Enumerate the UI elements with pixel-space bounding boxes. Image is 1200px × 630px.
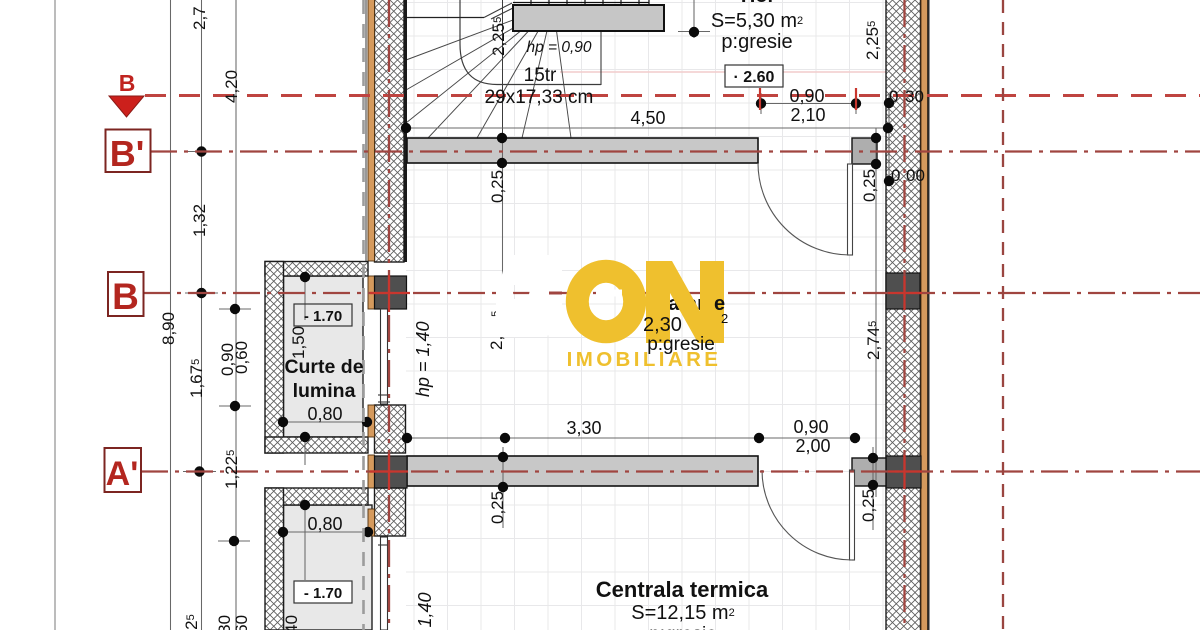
svg-text:0,25: 0,25 xyxy=(488,170,507,203)
svg-text:2,00: 2,00 xyxy=(795,436,830,456)
svg-text:0,60: 0,60 xyxy=(232,341,251,374)
svg-text:1,40: 1,40 xyxy=(282,615,301,630)
svg-text:- 1.70: - 1.70 xyxy=(304,585,342,602)
svg-text:hp = 1,40: hp = 1,40 xyxy=(415,592,435,630)
svg-text:2,10: 2,10 xyxy=(790,105,825,125)
svg-text:29x17,33 cm: 29x17,33 cm xyxy=(485,87,594,108)
svg-text:- 1.70: - 1.70 xyxy=(304,308,342,325)
svg-text:0,80: 0,80 xyxy=(307,514,342,534)
svg-text:p:gresie: p:gresie xyxy=(647,334,715,355)
svg-text:0,25: 0,25 xyxy=(860,169,879,202)
svg-text:0,25: 0,25 xyxy=(488,491,507,524)
svg-text:3,30: 3,30 xyxy=(566,418,601,438)
svg-text:30: 30 xyxy=(905,87,924,106)
svg-text:0: 0 xyxy=(889,87,898,106)
svg-text:1,50: 1,50 xyxy=(289,326,308,359)
svg-text:2,7: 2,7 xyxy=(190,6,209,30)
svg-text:hp = 1,40: hp = 1,40 xyxy=(413,321,433,397)
svg-text:0,80: 0,80 xyxy=(307,404,342,424)
svg-text:Curte de: Curte de xyxy=(284,356,363,378)
svg-text:0,90: 0,90 xyxy=(793,417,828,437)
svg-text:B: B xyxy=(119,70,136,96)
svg-text:S=12,15 m2: S=12,15 m2 xyxy=(631,602,734,624)
svg-text:· 2.60: · 2.60 xyxy=(734,69,775,86)
svg-text:B': B' xyxy=(110,133,145,174)
svg-text:2,30: 2,30 xyxy=(643,314,682,336)
svg-text:A': A' xyxy=(106,455,139,493)
svg-text:00: 00 xyxy=(906,166,925,185)
svg-text:B: B xyxy=(112,276,139,317)
svg-text:8,90: 8,90 xyxy=(159,312,178,345)
svg-text:1,32: 1,32 xyxy=(190,204,209,237)
svg-text:Centrala termica: Centrala termica xyxy=(596,577,769,602)
svg-text:hp = 0,90: hp = 0,90 xyxy=(526,39,591,56)
svg-text:0,90: 0,90 xyxy=(789,86,824,106)
svg-text:4,50: 4,50 xyxy=(630,108,665,128)
svg-text:4,20: 4,20 xyxy=(222,70,241,103)
svg-text:0,60: 0,60 xyxy=(232,615,251,630)
svg-text:15tr: 15tr xyxy=(524,65,557,86)
svg-text:e: e xyxy=(714,293,725,315)
svg-text:p:gresie: p:gresie xyxy=(649,624,717,630)
svg-text:Hol: Hol xyxy=(741,0,773,7)
svg-text:S=5,30 m2: S=5,30 m2 xyxy=(711,10,803,32)
svg-text:p:gresie: p:gresie xyxy=(721,31,792,53)
svg-text:lumina: lumina xyxy=(293,380,356,402)
svg-text:0,25: 0,25 xyxy=(859,489,878,522)
svg-text:0: 0 xyxy=(891,166,900,185)
